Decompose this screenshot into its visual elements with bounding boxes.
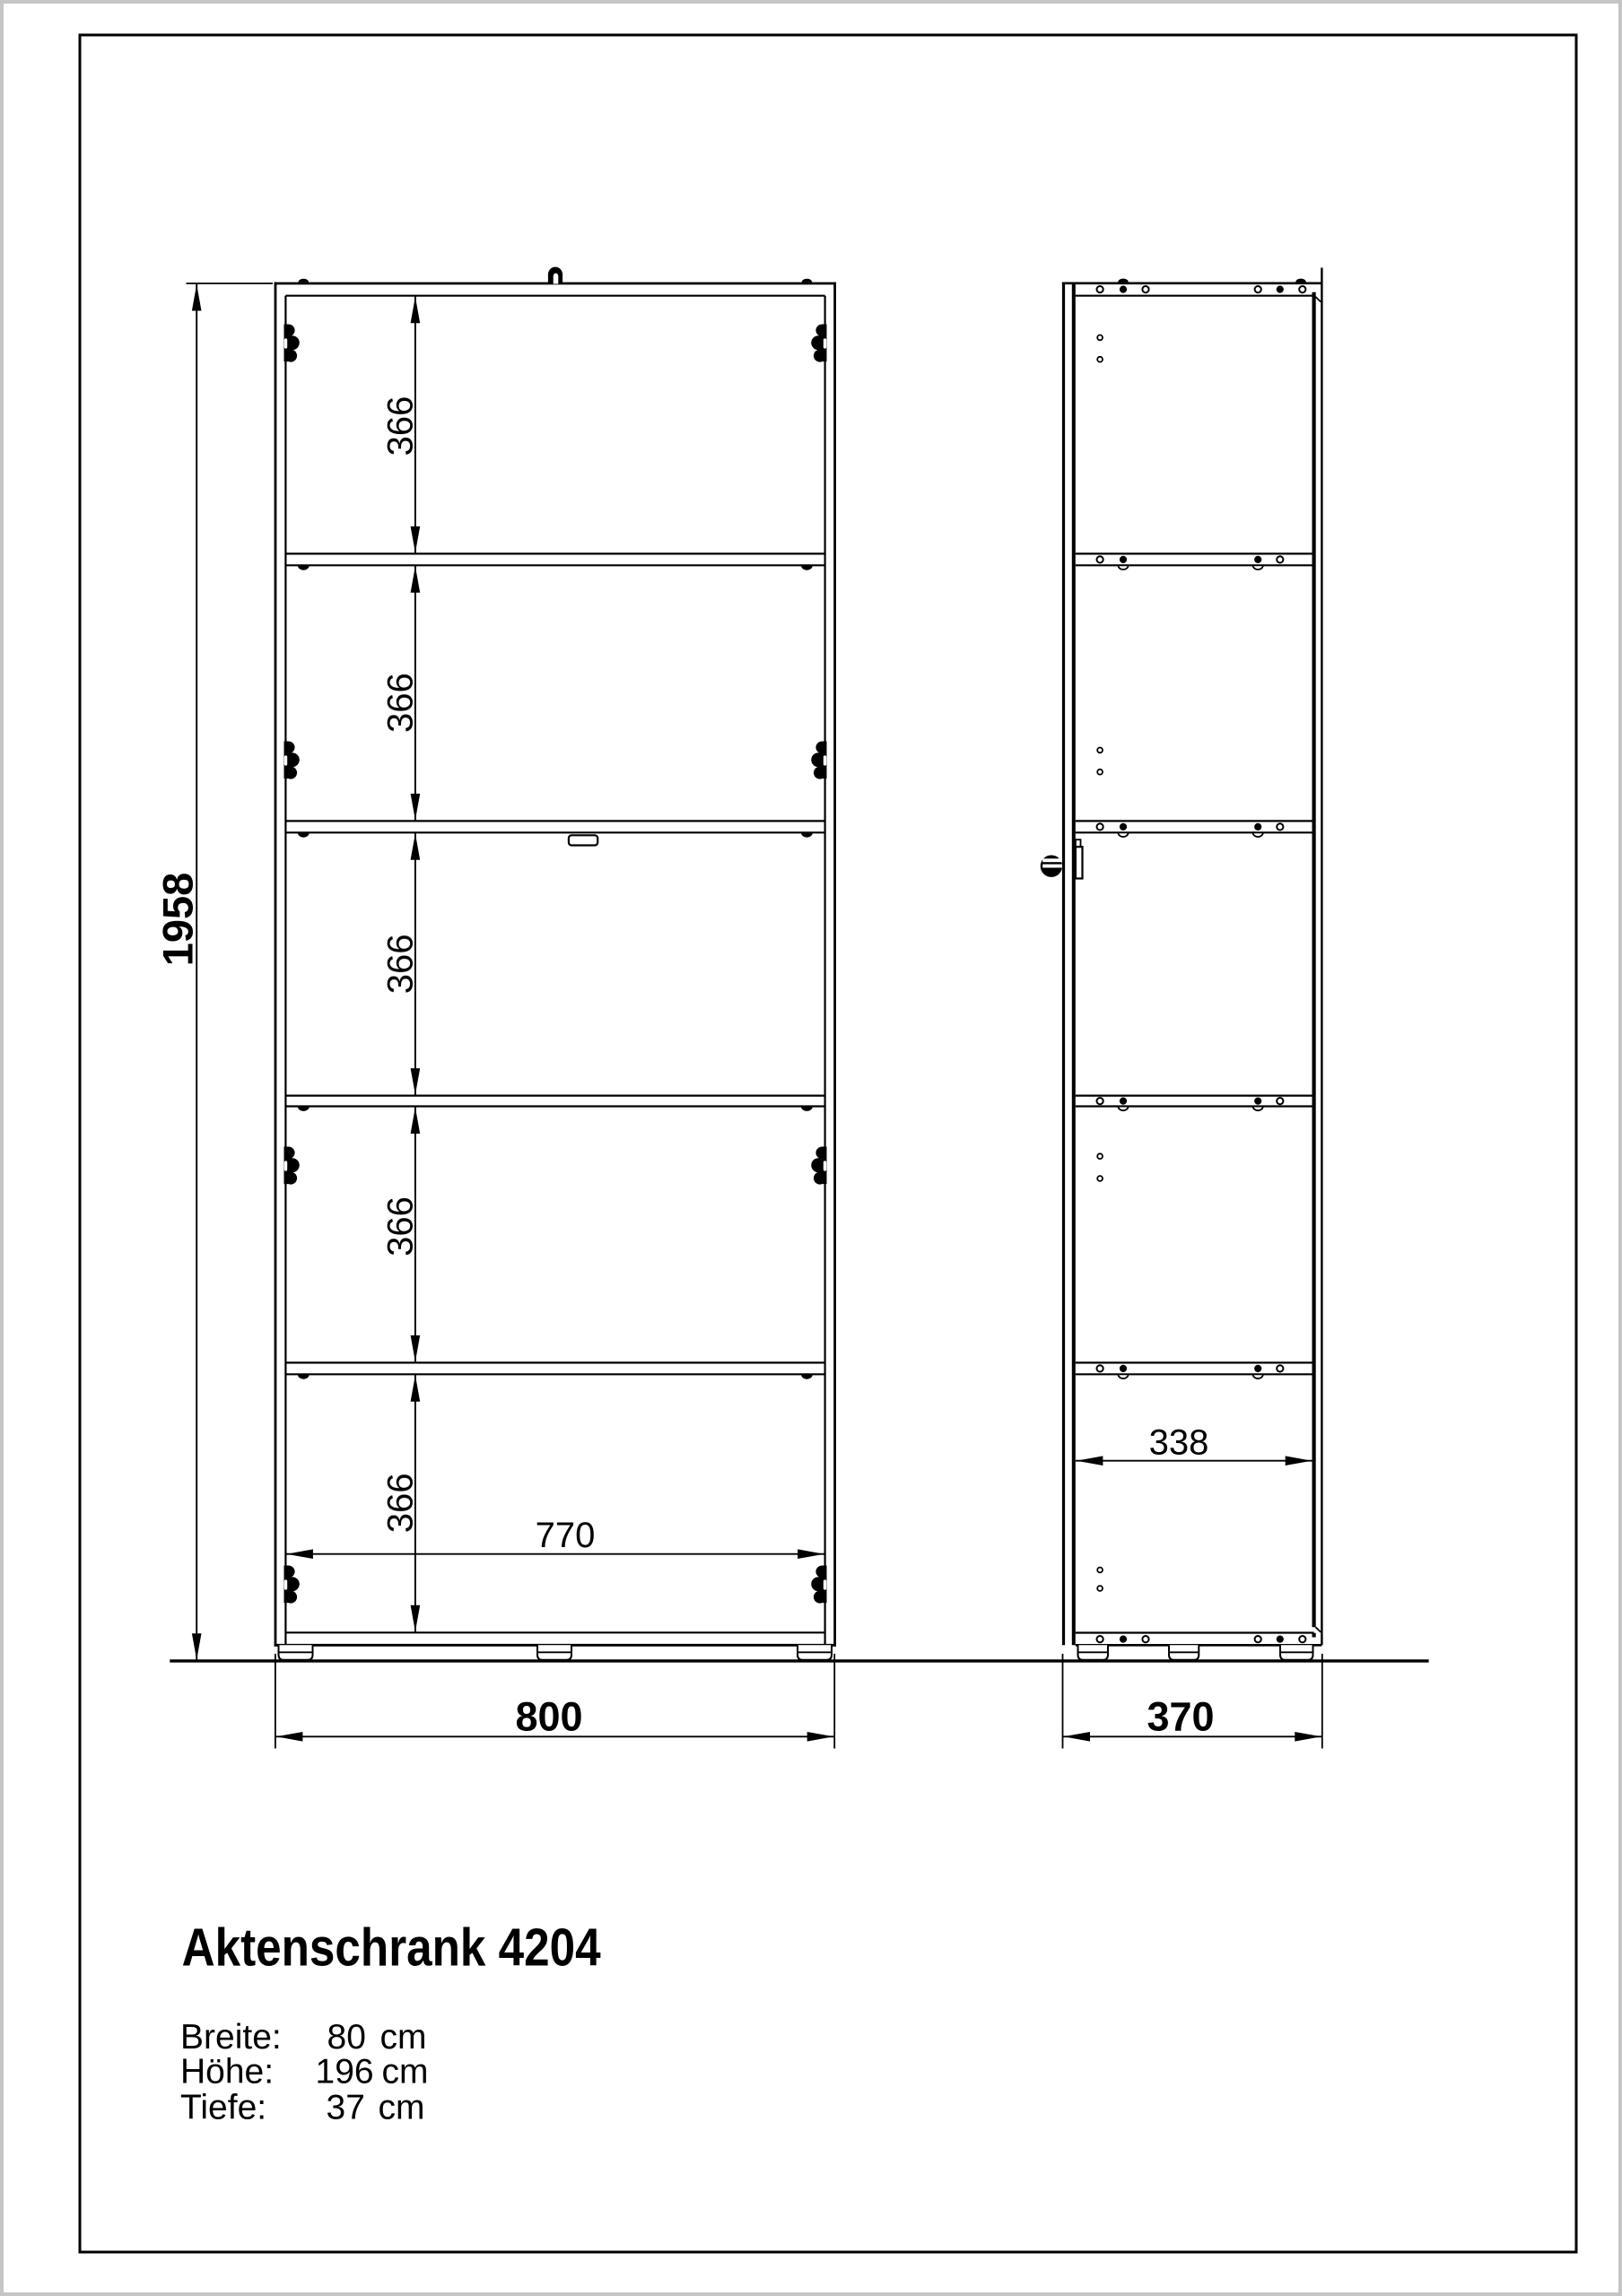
svg-text:800: 800 — [515, 1694, 582, 1740]
svg-text:366: 366 — [381, 396, 421, 457]
svg-text:1958: 1958 — [154, 873, 202, 967]
svg-text:366: 366 — [381, 1473, 421, 1533]
svg-text:cm: cm — [379, 2088, 425, 2126]
svg-text:Tiefe:: Tiefe: — [180, 2088, 266, 2126]
svg-text:80: 80 — [327, 2018, 366, 2057]
svg-text:770: 770 — [536, 1516, 596, 1555]
svg-text:cm: cm — [382, 2053, 429, 2092]
svg-text:196: 196 — [316, 2053, 374, 2092]
svg-text:Breite:: Breite: — [180, 2018, 282, 2057]
svg-text:370: 370 — [1147, 1694, 1214, 1740]
svg-text:37: 37 — [327, 2088, 365, 2126]
svg-text:cm: cm — [380, 2018, 427, 2057]
svg-text:Höhe:: Höhe: — [180, 2053, 274, 2092]
svg-text:Aktenschrank 4204: Aktenschrank 4204 — [182, 1918, 601, 1977]
svg-text:366: 366 — [381, 673, 421, 733]
svg-text:366: 366 — [381, 934, 421, 994]
svg-text:366: 366 — [381, 1196, 421, 1257]
svg-text:338: 338 — [1149, 1423, 1209, 1463]
